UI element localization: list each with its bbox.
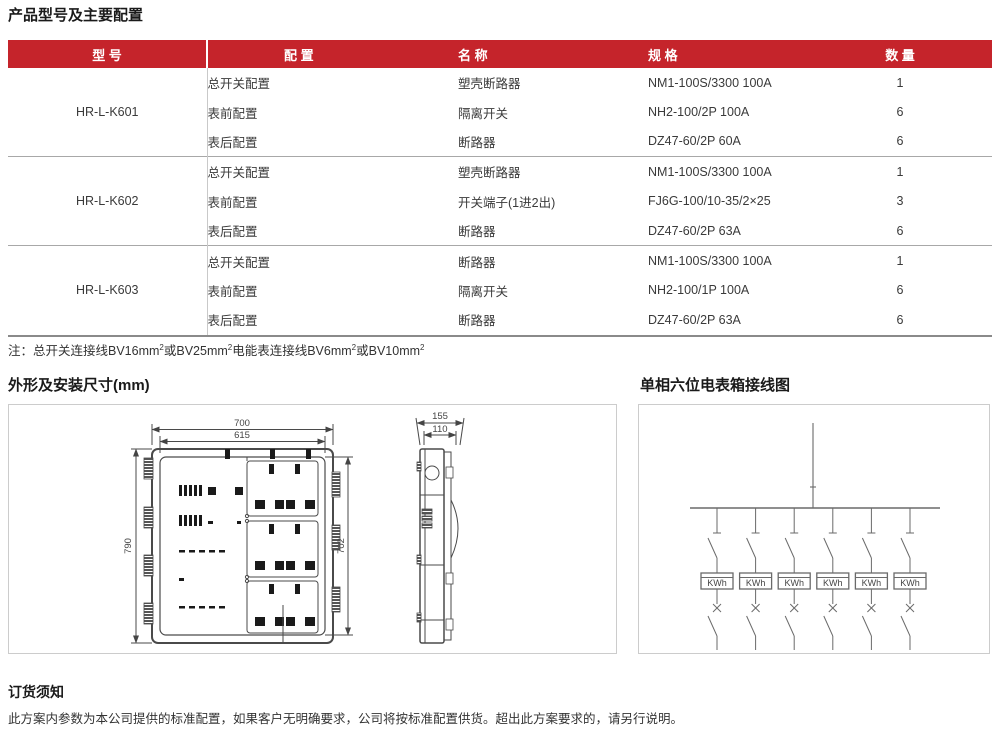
product-config-table: 型 号 配 置 名 称 规 格 数 量 HR-L-K601 总开关配置 塑壳断路… [8,40,992,337]
table-note: 注：总开关连接线BV16mm2或BV25mm2电能表连接线BV6mm2或BV10… [8,340,424,359]
qty-cell: 6 [808,127,992,157]
meter-branch: KWh [740,508,772,650]
spec-cell: NH2-100/1P 100A [648,276,808,305]
config-cell: 表前配置 [207,97,458,126]
name-cell: 塑壳断路器 [458,68,648,97]
config-cell: 表后配置 [207,216,458,246]
qty-cell: 3 [808,187,992,216]
model-cell: HR-L-K602 [8,157,207,246]
spec-cell: DZ47-60/2P 60A [648,127,808,157]
model-cell: HR-L-K601 [8,68,207,157]
front-view-drawing [131,424,353,643]
meter-branch: KWh [778,508,810,650]
table-row: HR-L-K602 总开关配置 塑壳断路器 NM1-100S/3300 100A… [8,157,992,187]
name-cell: 断路器 [458,305,648,335]
header-qty: 数 量 [808,40,992,68]
config-cell: 表前配置 [207,276,458,305]
spec-cell: NM1-100S/3300 100A [648,68,808,97]
dim-right-height-label: 702 [336,538,347,554]
kwh-meter-label: KWh [900,578,920,588]
kwh-meter-label: KWh [784,578,804,588]
name-cell: 断路器 [458,246,648,276]
spec-cell: NH2-100/2P 100A [648,97,808,126]
config-cell: 总开关配置 [207,68,458,97]
wiring-panel: KWh KWh KWh [638,404,990,654]
ordering-section-text: 此方案内参数为本公司提供的标准配置，如果客户无明确要求，公司将按标准配置供货。超… [8,708,683,727]
dim-inner-width-label: 615 [234,430,250,441]
kwh-meter-label: KWh [862,578,882,588]
note-sup: 2 [420,343,424,352]
spec-cell: NM1-100S/3300 100A [648,246,808,276]
qty-cell: 6 [808,305,992,335]
header-config: 配 置 [207,40,458,68]
name-cell: 隔离开关 [458,97,648,126]
dim-side-inner-depth-label: 110 [432,424,447,435]
kwh-meter-label: KWh [823,578,843,588]
ordering-section-title: 订货须知 [8,682,64,702]
table-row: HR-L-K601 总开关配置 塑壳断路器 NM1-100S/3300 100A… [8,68,992,97]
dimension-labels: 700 615 790 702 155 110 [123,411,448,554]
note-text: 或BV25mm [164,344,228,358]
note-text: 或BV10mm [356,344,420,358]
wiring-diagram: KWh KWh KWh [639,405,989,653]
spec-cell: DZ47-60/2P 63A [648,305,808,335]
config-cell: 总开关配置 [207,157,458,187]
outline-dimension-drawing: 700 615 790 702 155 110 [9,405,616,653]
header-name: 名 称 [458,40,648,68]
qty-cell: 1 [808,157,992,187]
kwh-meter-label: KWh [746,578,766,588]
datasheet-page: 产品型号及主要配置 型 号 配 置 名 称 规 格 数 量 HR-L-K601 … [0,0,1000,749]
qty-cell: 1 [808,246,992,276]
model-cell: HR-L-K603 [8,246,207,336]
table-header-row: 型 号 配 置 名 称 规 格 数 量 [8,40,992,68]
side-view-drawing [416,418,464,643]
dimensions-panel: 700 615 790 702 155 110 [8,404,617,654]
page-title: 产品型号及主要配置 [8,4,143,25]
header-model: 型 号 [8,40,207,68]
qty-cell: 6 [808,97,992,126]
meter-branch: KWh [701,508,733,650]
spec-cell: FJ6G-100/10-35/2×25 [648,187,808,216]
qty-cell: 6 [808,276,992,305]
dim-outer-width-label: 700 [234,418,250,429]
kwh-meter-label: KWh [707,578,727,588]
config-cell: 表前配置 [207,187,458,216]
name-cell: 开关端子(1进2出) [458,187,648,216]
spec-cell: NM1-100S/3300 100A [648,157,808,187]
name-cell: 隔离开关 [458,276,648,305]
name-cell: 塑壳断路器 [458,157,648,187]
header-spec: 规 格 [648,40,808,68]
dim-side-depth-label: 155 [432,411,448,422]
config-cell: 总开关配置 [207,246,458,276]
table-row: HR-L-K603 总开关配置 断路器 NM1-100S/3300 100A 1 [8,246,992,276]
dimensions-section-title: 外形及安装尺寸(mm) [8,374,150,395]
name-cell: 断路器 [458,127,648,157]
note-text: 注：总开关连接线BV16mm [8,344,159,358]
meter-branches: KWh KWh KWh [701,508,926,650]
meter-branch: KWh [894,508,926,650]
spec-cell: DZ47-60/2P 63A [648,216,808,246]
dim-left-height-label: 790 [123,538,134,554]
wiring-section-title: 单相六位电表箱接线图 [640,374,790,395]
note-text: 电能表连接线BV6mm [232,344,351,358]
qty-cell: 6 [808,216,992,246]
name-cell: 断路器 [458,216,648,246]
qty-cell: 1 [808,68,992,97]
config-cell: 表后配置 [207,305,458,335]
meter-branch: KWh [817,508,849,650]
config-cell: 表后配置 [207,127,458,157]
meter-branch: KWh [855,508,887,650]
